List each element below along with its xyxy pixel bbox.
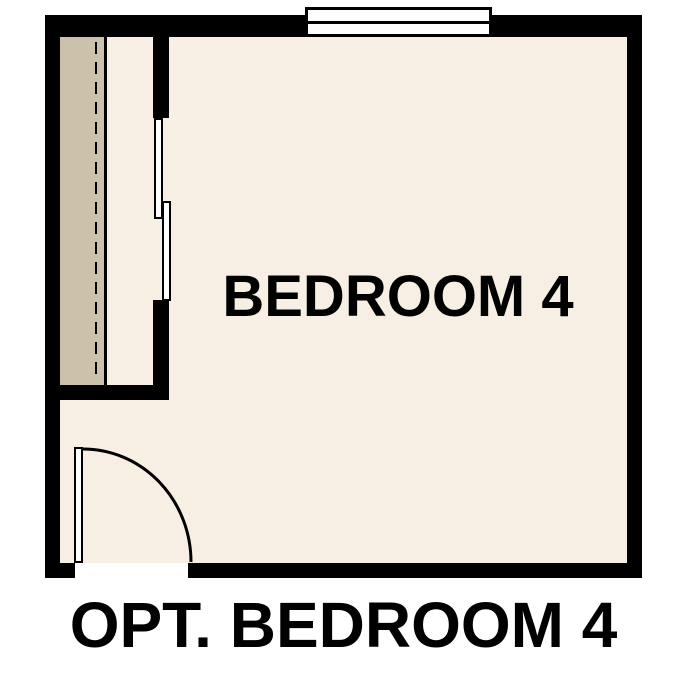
door-swing-arc — [74, 443, 204, 571]
closet-rod-dashed-line — [95, 42, 97, 380]
wall-right — [627, 15, 642, 578]
closet-shelf-area — [60, 37, 104, 385]
plan-caption: OPT. BEDROOM 4 — [0, 592, 687, 658]
closet-side-wall-lower — [153, 300, 169, 400]
closet-shelf-edge-line — [104, 37, 107, 385]
closet-side-wall-upper — [153, 37, 169, 118]
wall-bottom — [188, 563, 642, 578]
wall-left — [45, 15, 60, 578]
floor-plan: BEDROOM 4 OPT. BEDROOM 4 — [0, 0, 687, 687]
wall-bottom-left-stub — [45, 563, 75, 578]
window-symbol — [305, 7, 492, 37]
window-divider-line — [308, 21, 489, 24]
room-label: BEDROOM 4 — [169, 267, 627, 327]
closet-bottom-wall — [45, 385, 169, 400]
